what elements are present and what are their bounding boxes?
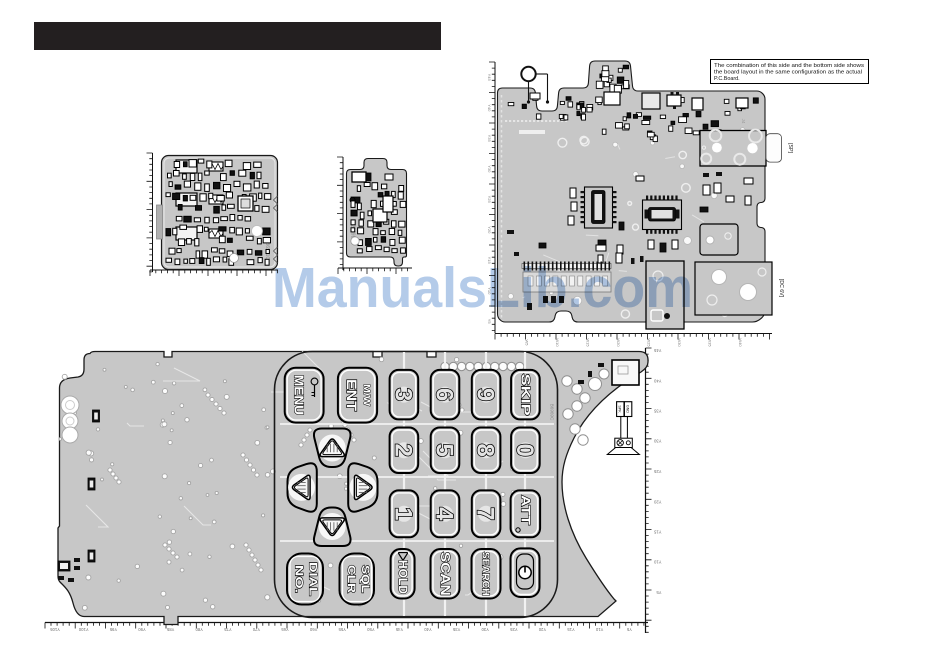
svg-text:Y90: Y90 — [138, 627, 146, 632]
svg-text:0: 0 — [511, 444, 538, 457]
svg-text:Y60: Y60 — [309, 627, 317, 632]
svg-text:Y105: Y105 — [50, 627, 60, 632]
svg-text:Y25: Y25 — [487, 196, 492, 204]
svg-text:Y15: Y15 — [653, 530, 661, 535]
svg-text:Y30: Y30 — [481, 627, 489, 632]
svg-text:CLR: CLR — [345, 565, 357, 593]
svg-text:The combination of this side a: The combination of this side and the bot… — [714, 63, 864, 69]
svg-text:Y55: Y55 — [338, 627, 346, 632]
svg-text:ManualsLib.com: ManualsLib.com — [272, 256, 693, 320]
svg-text:SQL: SQL — [359, 565, 371, 593]
svg-text:W5: W5 — [525, 340, 530, 347]
svg-text:W25: W25 — [647, 338, 652, 347]
svg-text:Y5: Y5 — [626, 627, 632, 632]
svg-text:9: 9 — [471, 388, 498, 401]
svg-text:the board layout in the same c: the board layout in the same configurati… — [714, 70, 862, 76]
svg-text:W35: W35 — [708, 338, 713, 347]
svg-text:HOLD: HOLD — [396, 560, 408, 594]
svg-text:Y70: Y70 — [252, 627, 260, 632]
svg-text:ENT: ENT — [344, 379, 360, 412]
svg-text:Y45: Y45 — [395, 627, 403, 632]
svg-text:DIAL: DIAL — [307, 562, 319, 596]
svg-text:Y100: Y100 — [78, 627, 88, 632]
svg-text:SCAN: SCAN — [438, 552, 453, 596]
svg-text:Y80: Y80 — [195, 627, 203, 632]
svg-text:M/W: M/W — [362, 384, 372, 407]
svg-text:Y35: Y35 — [452, 627, 460, 632]
svg-text:Y45: Y45 — [487, 74, 492, 82]
svg-text:6: 6 — [430, 388, 457, 401]
svg-text:B6969C: B6969C — [550, 404, 555, 421]
svg-text:J4: J4 — [741, 119, 746, 124]
svg-text:Y25: Y25 — [509, 627, 517, 632]
svg-text:1: 1 — [389, 507, 416, 520]
svg-text:SKIP: SKIP — [518, 374, 530, 417]
svg-text:W20: W20 — [616, 338, 621, 347]
svg-text:Y35: Y35 — [653, 409, 661, 414]
svg-text:7: 7 — [471, 507, 498, 520]
svg-text:Y40: Y40 — [487, 104, 492, 112]
svg-text:5: 5 — [430, 444, 457, 457]
svg-text:W15: W15 — [586, 338, 591, 347]
svg-text:4: 4 — [430, 507, 457, 521]
svg-text:Y20: Y20 — [538, 627, 546, 632]
svg-text:Y35: Y35 — [487, 135, 492, 143]
svg-text:Y30: Y30 — [653, 439, 661, 444]
svg-text:Y25: Y25 — [653, 469, 661, 474]
svg-text:Y15: Y15 — [567, 627, 575, 632]
svg-text:3: 3 — [389, 388, 416, 401]
svg-text:W40: W40 — [738, 338, 743, 347]
svg-text:SEARCH: SEARCH — [480, 552, 492, 596]
svg-text:Y10: Y10 — [653, 560, 661, 565]
svg-text:Y20: Y20 — [653, 499, 661, 504]
svg-text:ATT: ATT — [518, 495, 530, 525]
svg-text:W30: W30 — [677, 338, 682, 347]
svg-text:Y95: Y95 — [109, 627, 117, 632]
svg-text:Y65: Y65 — [281, 627, 289, 632]
svg-text:Y5: Y5 — [656, 590, 662, 595]
svg-text:MENU: MENU — [291, 375, 306, 415]
svg-text:W10: W10 — [555, 338, 560, 347]
svg-text:2: 2 — [389, 444, 416, 457]
svg-text:P.C.Board.: P.C.Board. — [714, 76, 740, 82]
svg-text:Y30: Y30 — [487, 165, 492, 173]
svg-text:[DC 6V]: [DC 6V] — [778, 279, 784, 298]
svg-text:Y50: Y50 — [366, 627, 374, 632]
svg-text:Y75: Y75 — [223, 627, 231, 632]
svg-text:GND: GND — [625, 405, 629, 413]
svg-text:Y40: Y40 — [424, 627, 432, 632]
svg-text:NO.: NO. — [293, 565, 305, 593]
svg-text:Y45: Y45 — [653, 348, 661, 353]
svg-text:8: 8 — [471, 444, 498, 457]
svg-text:[SP]: [SP] — [787, 143, 793, 153]
svg-text:Y40: Y40 — [653, 378, 661, 383]
svg-text:Y10: Y10 — [595, 627, 603, 632]
svg-text:Y20: Y20 — [487, 226, 492, 234]
svg-text:SPK: SPK — [618, 405, 622, 413]
svg-text:Y85: Y85 — [166, 627, 174, 632]
